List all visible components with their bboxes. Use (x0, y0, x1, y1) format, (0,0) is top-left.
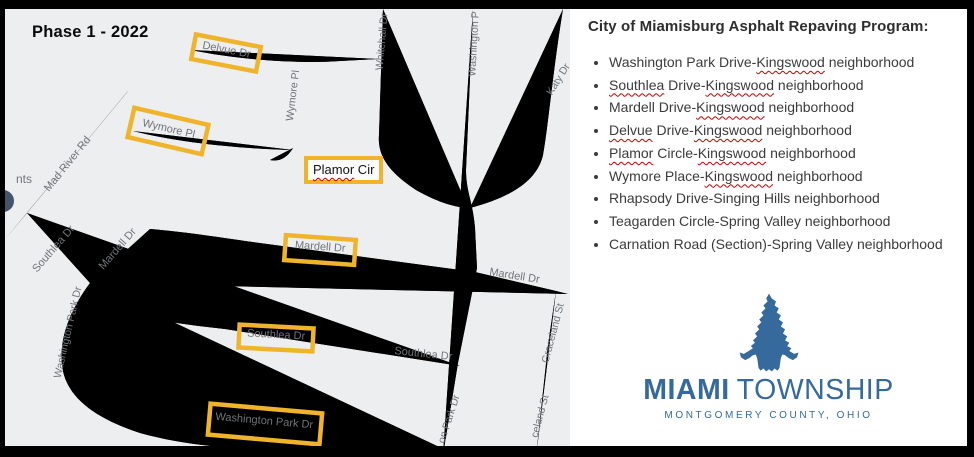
text-run: neighborhood (825, 54, 915, 70)
misspelled-word: Plamor (313, 162, 354, 177)
logo-name-primary: MIAMI (643, 374, 729, 406)
misspelled-word: Southlea (609, 77, 664, 93)
text-run: Cir (354, 162, 374, 177)
logo-wordmark: MIAMITOWNSHIP (570, 375, 967, 405)
list-item: Teagarden Circle-Spring Valley neighborh… (609, 210, 963, 233)
text-run: Rhapsody Drive-Singing Hills neighborhoo… (609, 190, 880, 206)
flyer-content: Mad River Rd Delvue Dr Wymore Pl Wymore … (5, 9, 967, 446)
text-run: Circle- (653, 145, 697, 161)
list-item: Carnation Road (Section)-Spring Valley n… (609, 233, 963, 256)
logo-name-secondary: TOWNSHIP (737, 374, 894, 406)
map: Mad River Rd Delvue Dr Wymore Pl Wymore … (5, 9, 570, 446)
street-label-wymore-pl-vertical: Wymore Pl (284, 69, 302, 121)
text-run: Carnation Road (Section)-Spring Valley n… (609, 236, 943, 252)
arrowhead-icon (734, 292, 804, 373)
phase-title: Phase 1 - 2022 (32, 23, 149, 42)
street-label-graceland-st: Graceland St (539, 302, 566, 364)
text-run: neighborhood (762, 122, 852, 138)
misspelled-word: Kingswood (705, 168, 774, 184)
text-run: Teagarden Circle-Spring Valley neighborh… (609, 213, 890, 229)
panel-title: City of Miamisburg Asphalt Repaving Prog… (588, 18, 963, 35)
street-label-celand-st: celand St (529, 393, 552, 438)
list-item: Southlea Drive-Kingswood neighborhood (609, 74, 963, 97)
flyer: Mad River Rd Delvue Dr Wymore Pl Wymore … (0, 0, 974, 457)
misspelled-word: Kingswood (694, 122, 763, 138)
misspelled-word: Kingswood (706, 77, 775, 93)
roads (5, 9, 568, 446)
text-run: Washington Park Drive- (609, 54, 756, 70)
text-run: Wymore Place- (609, 168, 705, 184)
misspelled-word: Kingswood (698, 145, 767, 161)
list-item: Mardell Drive-Kingswood neighborhood (609, 96, 963, 119)
text-run: neighborhood (765, 99, 855, 115)
poi-marker-icon (5, 190, 14, 212)
street-label-mad-river-rd: Mad River Rd (42, 134, 94, 194)
text-run: Drive- (653, 122, 694, 138)
street-label-southlea-dr-3: Southlea Dr (394, 345, 453, 363)
text-run: Mardell Drive- (609, 99, 696, 115)
misspelled-word: Kingswood (696, 99, 765, 115)
text-run: neighborhood (766, 145, 856, 161)
list-item: Plamor Circle-Kingswood neighborhood (609, 142, 963, 165)
text-run: neighborhood (774, 77, 864, 93)
street-label-washington-p: Washington P (466, 11, 481, 77)
list-item: Wymore Place-Kingswood neighborhood (609, 165, 963, 188)
misspelled-word: Kingswood (756, 54, 825, 70)
partial-poi-label: nts (16, 172, 32, 186)
misspelled-word: Plamor (609, 145, 653, 161)
plamor-cir-annotation: Plamor Cir (304, 156, 383, 184)
list-item: Washington Park Drive-Kingswood neighbor… (609, 51, 963, 74)
misspelled-word: Delvue (609, 122, 653, 138)
repaving-list: Washington Park Drive-Kingswood neighbor… (588, 51, 963, 255)
list-item: Rhapsody Drive-Singing Hills neighborhoo… (609, 187, 963, 210)
logo-subtitle: MONTGOMERY COUNTY, OHIO (570, 410, 967, 421)
map-graphic: Mad River Rd Delvue Dr Wymore Pl Wymore … (5, 9, 570, 446)
street-label-on-park-dr: on Park Dr (436, 393, 463, 445)
info-panel: City of Miamisburg Asphalt Repaving Prog… (570, 9, 967, 446)
miami-township-logo: MIAMITOWNSHIP MONTGOMERY COUNTY, OHIO (570, 292, 967, 421)
list-item: Delvue Drive-Kingswood neighborhood (609, 119, 963, 142)
text-run: Drive- (664, 77, 705, 93)
text-run: neighborhood (773, 168, 863, 184)
